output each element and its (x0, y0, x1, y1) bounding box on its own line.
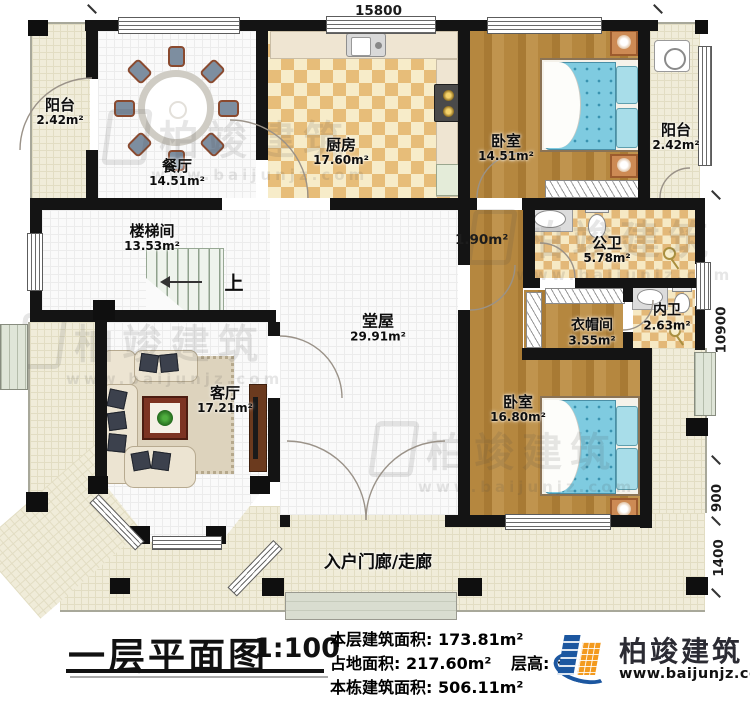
room-label-ensuite-bath: 内卫 2.63m² (643, 303, 690, 332)
room-area: 3.55m² (568, 334, 615, 347)
room-area: 14.51m² (478, 150, 534, 163)
closet-bedroom-top (545, 180, 639, 198)
window (505, 514, 611, 530)
wardrobe-cloakroom-top (545, 288, 625, 304)
room-area: 16.80m² (490, 411, 546, 424)
dining-chair (114, 100, 135, 117)
room-area: 29.91m² (350, 330, 406, 343)
potted-plant (157, 410, 173, 426)
dimension-tick (711, 190, 721, 200)
wall (623, 288, 633, 302)
corner-pillar (262, 578, 284, 596)
stat-label: 层高: (511, 654, 549, 673)
floor-corridor (470, 210, 523, 350)
room-name: 衣帽间 (568, 318, 615, 334)
room-label-cloakroom: 衣帽间 3.55m² (568, 318, 615, 347)
sofa-cushion (107, 433, 127, 453)
wall (30, 198, 222, 210)
window (118, 17, 240, 34)
entry-steps (285, 592, 457, 620)
stat-floor-area: 本层建筑面积: 173.81m² (330, 626, 523, 650)
room-label-stair-hall: 楼梯间 13.53m² (124, 223, 180, 253)
sofa-cushion (107, 411, 127, 431)
dimension-tick (711, 516, 721, 526)
kitchen-fridge (436, 164, 460, 196)
bed-top-frame (540, 58, 640, 152)
wall (470, 515, 508, 527)
wall (86, 150, 98, 198)
room-label-main-hall: 堂屋 29.91m² (350, 312, 406, 343)
wall (575, 278, 705, 288)
wall (640, 198, 662, 210)
dim-right-height: 10900 (713, 307, 729, 354)
wall (95, 322, 107, 480)
dining-table (138, 70, 214, 146)
window (696, 262, 711, 310)
corner-pillar (250, 476, 270, 494)
shower-symbol (663, 247, 676, 260)
stat-land-area: 占地面积: 217.60m² 层高: 3 (330, 650, 566, 674)
stat-value: 217.60m² (406, 654, 491, 673)
stat-total-area: 本栋建筑面积: 506.11m² (330, 674, 523, 698)
title-underline (66, 669, 324, 673)
dim-top-width: 15800 (355, 3, 402, 19)
window (27, 233, 43, 291)
room-label-balcony-left: 阳台 2.42m² (36, 97, 83, 127)
dim-corridor-width: 1.90m² (455, 232, 508, 248)
room-name: 卧室 (490, 394, 546, 411)
room-area: 2.42m² (652, 139, 699, 152)
nightstand (610, 30, 638, 56)
bed-bottom-pillow (616, 406, 638, 446)
wall (523, 278, 540, 288)
sofa-corner (102, 350, 136, 386)
company-name: 柏竣建筑 (619, 630, 743, 670)
title-underline-thin (70, 676, 328, 678)
room-name: 餐厅 (149, 158, 205, 175)
room-label-kitchen: 厨房 17.60m² (313, 137, 369, 167)
wall (638, 20, 650, 210)
room-name: 客厅 (197, 385, 253, 402)
room-label-bedroom-bottom: 卧室 16.80m² (490, 394, 546, 424)
room-label-bedroom-top: 卧室 14.51m² (478, 133, 534, 163)
bed-bottom-pillow (616, 448, 638, 490)
corner-pillar (110, 578, 130, 594)
window-box-right (694, 352, 716, 416)
window (698, 46, 712, 166)
room-name: 卧室 (478, 133, 534, 150)
stat-label: 本层建筑面积: (330, 630, 432, 649)
wall (445, 515, 470, 527)
stairs-direction-line (170, 281, 202, 283)
bed-top-pillow (616, 66, 638, 104)
corner-pillar (458, 578, 482, 596)
stairs-up-label: 上 (224, 273, 243, 294)
nightstand (610, 154, 638, 178)
room-label-living: 客厅 17.21m² (197, 385, 253, 415)
dim-right-offset-upper: 900 (709, 484, 725, 512)
dim-right-offset-lower: 1400 (711, 539, 727, 577)
sofa-cushion (139, 353, 159, 373)
company-logo-icon (553, 629, 615, 685)
window (487, 17, 602, 34)
kitchen-sink (346, 33, 386, 57)
room-name: 公卫 (583, 235, 630, 252)
washer-drum (664, 48, 686, 70)
room-label-dining: 餐厅 14.51m² (149, 158, 205, 188)
coffee-table (142, 396, 188, 440)
stairs-direction-arrow (160, 276, 170, 288)
dining-chair (218, 100, 239, 117)
corner-pillar (686, 577, 708, 595)
washing-machine (654, 40, 690, 72)
room-area: 2.42m² (36, 114, 83, 127)
room-label-balcony-right: 阳台 2.42m² (652, 122, 699, 152)
room-name: 阳台 (652, 122, 699, 139)
wall (268, 398, 280, 482)
stat-value: 506.11m² (438, 678, 523, 697)
stairs-up-text: 上 (224, 273, 243, 294)
room-name: 厨房 (313, 137, 369, 154)
wall (688, 198, 705, 210)
wardrobe-cloakroom-side (526, 292, 542, 348)
wall (30, 310, 276, 322)
room-name: 内卫 (643, 303, 690, 319)
stat-label: 本栋建筑面积: (330, 678, 432, 697)
nightstand-lamp (617, 35, 631, 49)
nightstand-lamp (617, 158, 631, 172)
stove-burner (443, 90, 454, 101)
room-area: 5.78m² (583, 252, 630, 265)
dimension-tick (87, 4, 97, 14)
dimension-tick (711, 588, 721, 598)
room-area: 2.63m² (643, 319, 690, 332)
wall (608, 515, 652, 527)
room-area: 17.21m² (197, 402, 253, 415)
kitchen-stove (434, 84, 460, 122)
room-area: 13.53m² (124, 240, 180, 253)
corner-pillar (686, 418, 708, 436)
wall (470, 198, 477, 210)
sofa-cushion (159, 353, 179, 373)
wall (695, 210, 705, 264)
bed-top-pillow (616, 108, 638, 148)
corner-pillar (88, 476, 108, 494)
wall (522, 198, 705, 210)
dimension-tick (653, 4, 663, 14)
kitchen-faucet (375, 42, 382, 49)
wall (256, 20, 268, 160)
wall (522, 348, 628, 360)
wall (86, 31, 98, 79)
drawing-scale: 1:100 (254, 633, 340, 664)
sofa-cushion (106, 388, 127, 409)
dining-chair (168, 46, 185, 67)
nightstand-lamp (617, 502, 631, 516)
stat-label: 占地面积: (330, 654, 400, 673)
sofa-cushion (151, 451, 171, 471)
company-website: www.baijunjz.com (619, 666, 750, 682)
bay-window-bottom (152, 536, 222, 550)
wall (268, 322, 280, 336)
tv-screen (253, 397, 258, 459)
window-box-left (0, 324, 28, 390)
room-name: 入户门廊/走廊 (324, 553, 432, 572)
room-name: 阳台 (36, 97, 83, 114)
corner-pillar (28, 20, 48, 36)
room-area: 14.51m² (149, 175, 205, 188)
bed-bottom-frame (540, 396, 640, 496)
wall (458, 20, 470, 210)
room-label-public-bath: 公卫 5.78m² (583, 235, 630, 265)
stove-burner (443, 106, 454, 117)
wall (523, 210, 535, 278)
corner-pillar (695, 20, 708, 34)
floor-plan-canvas: 柏竣建筑 www.baijunjz.com 柏竣建筑 www.baijunjz.… (0, 0, 750, 707)
room-area: 17.60m² (313, 154, 369, 167)
wall (280, 515, 290, 527)
room-name: 堂屋 (350, 312, 406, 330)
wall (458, 310, 470, 527)
wall (640, 348, 652, 528)
room-label-entry-porch: 入户门廊/走廊 (324, 553, 432, 572)
floor-main-hall (280, 210, 458, 515)
stat-value: 173.81m² (438, 630, 523, 649)
dimension-tick (711, 455, 721, 465)
kitchen-sink-basin (351, 37, 371, 56)
room-name: 楼梯间 (124, 223, 180, 240)
corner-pillar (26, 492, 48, 512)
corner-pillar (93, 300, 115, 320)
wall (695, 306, 705, 350)
sofa-cushion (131, 451, 152, 472)
bath-sink (534, 210, 566, 228)
dining-table-center (169, 101, 187, 119)
wall (330, 198, 458, 210)
